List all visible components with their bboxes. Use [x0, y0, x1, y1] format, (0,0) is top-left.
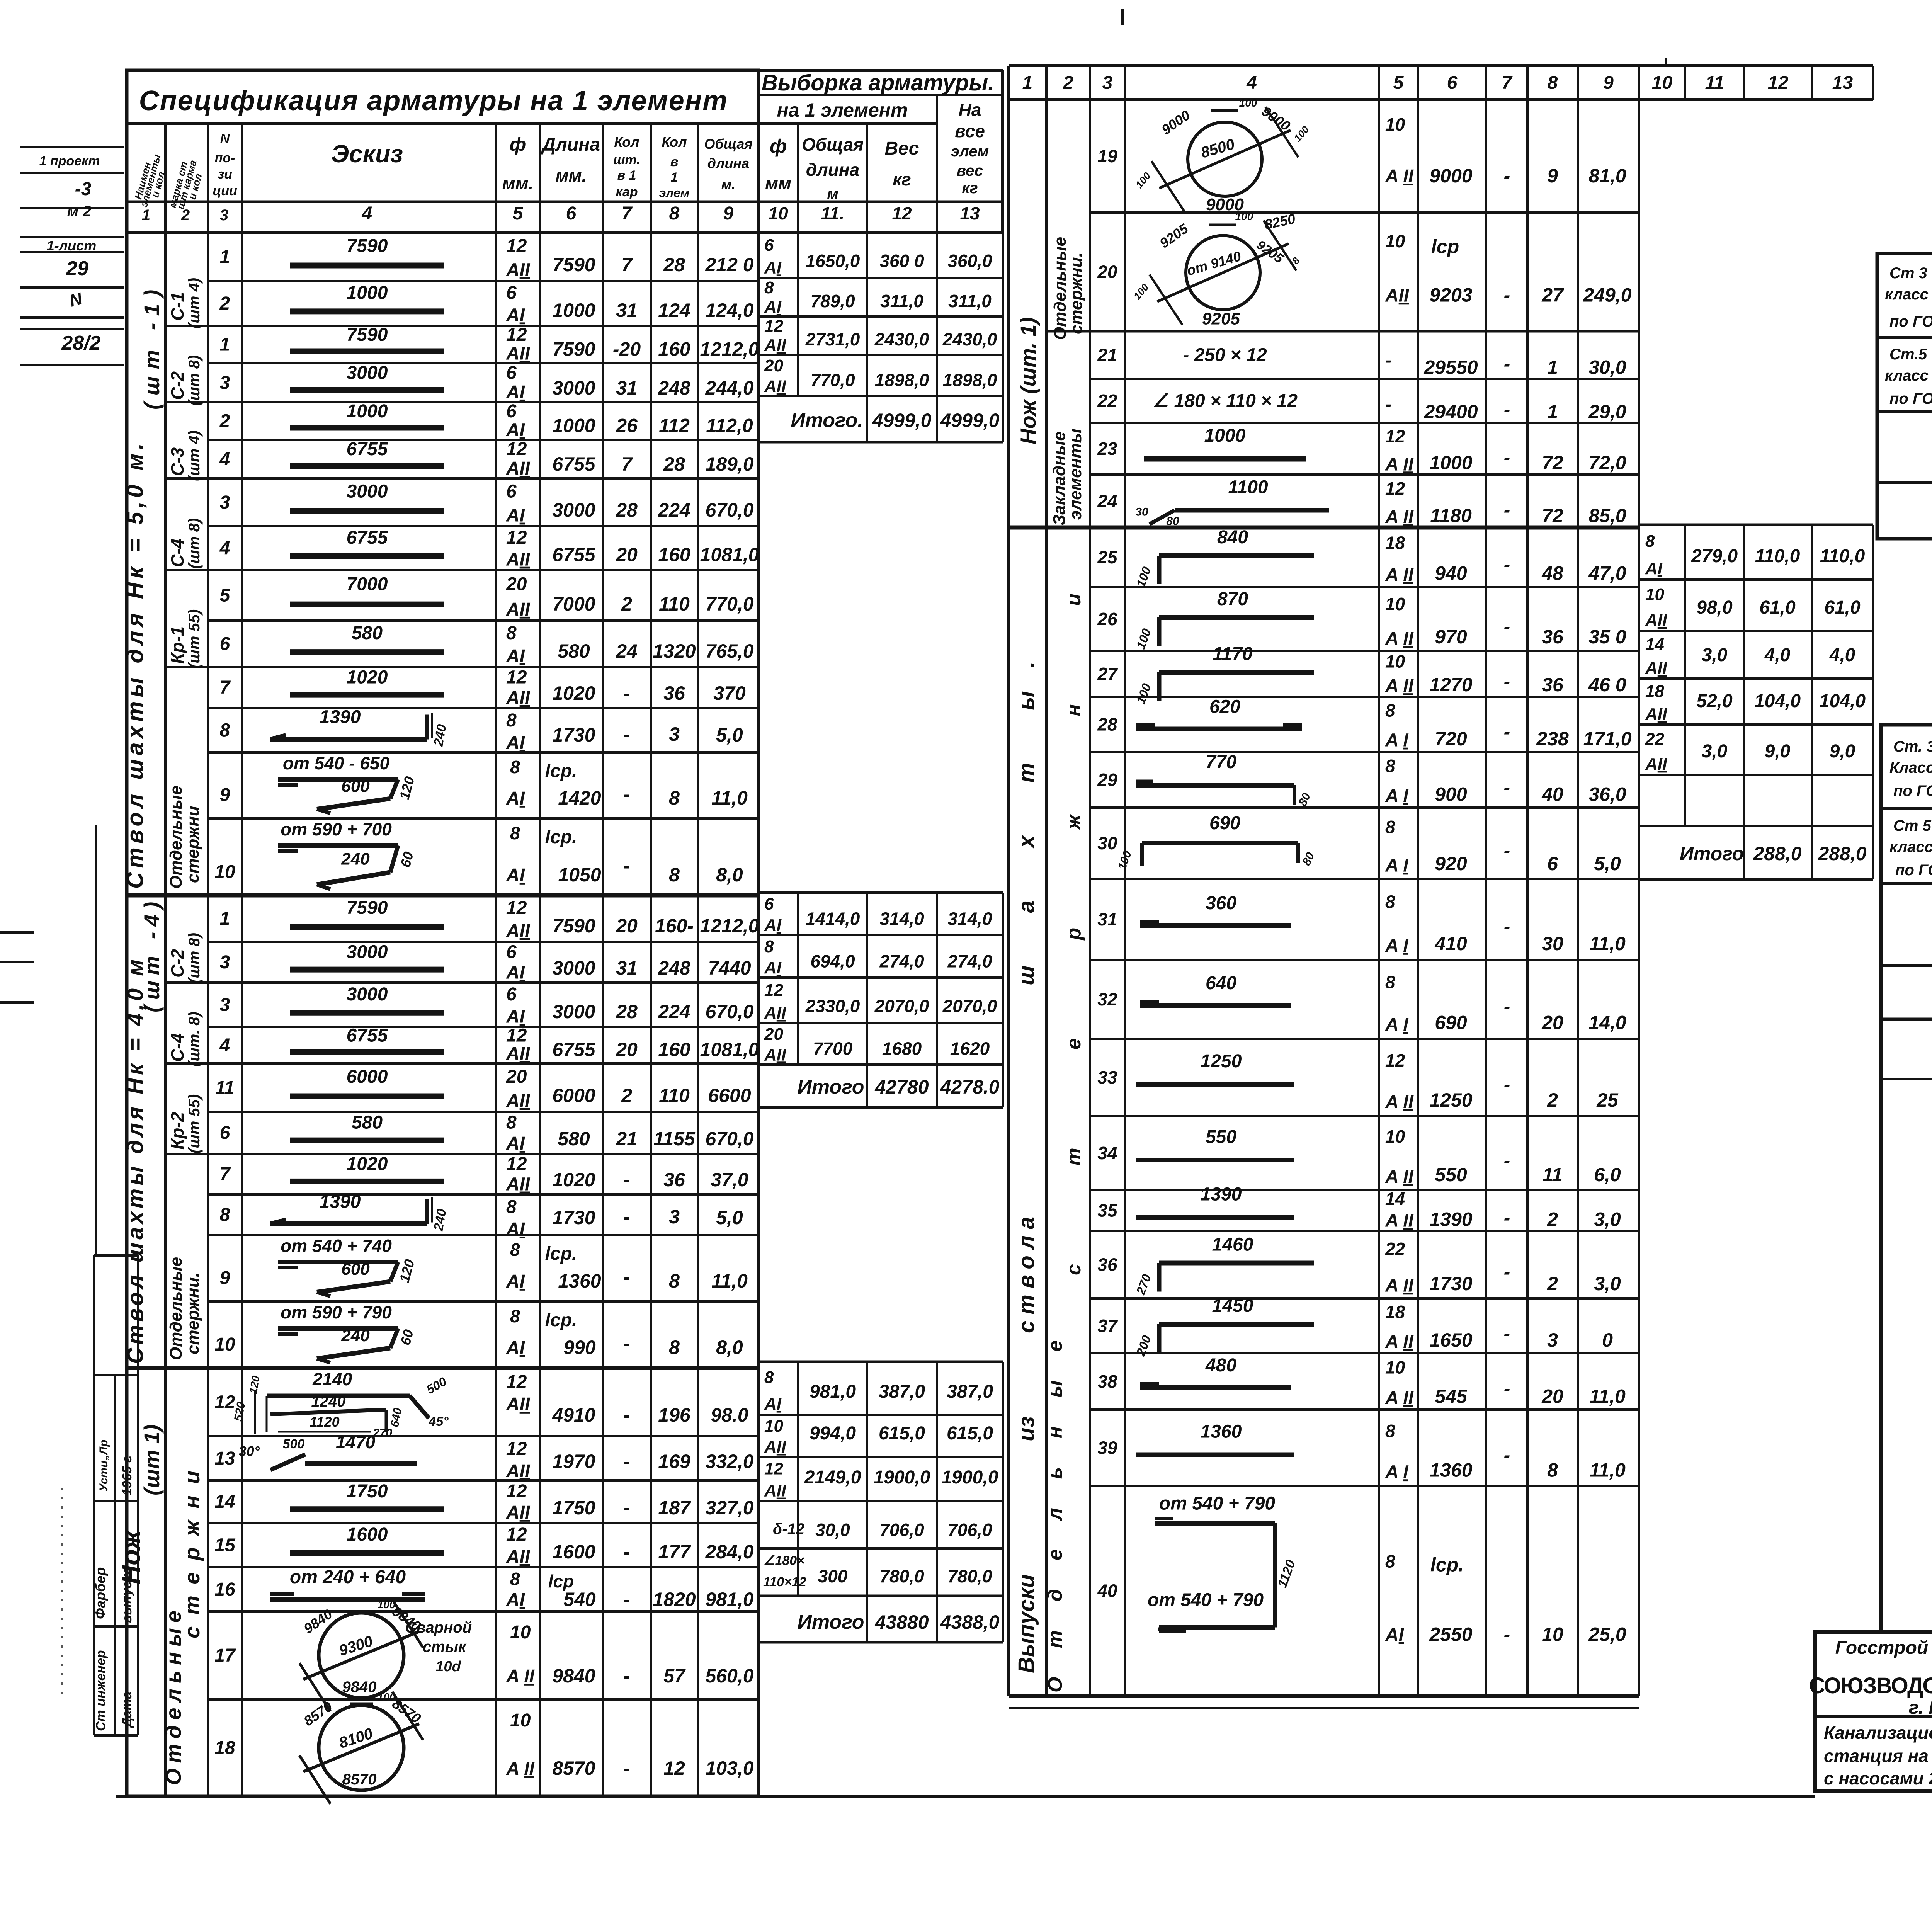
svg-text:8: 8	[764, 1368, 774, 1387]
svg-text:1900,0: 1900,0	[942, 1467, 998, 1488]
svg-text:1420: 1420	[558, 787, 601, 809]
svg-text:2: 2	[1547, 1089, 1558, 1111]
svg-text:9203: 9203	[1429, 284, 1472, 306]
svg-text:12: 12	[506, 1154, 527, 1174]
svg-text:1970: 1970	[552, 1451, 595, 1472]
svg-text:-: -	[1504, 1207, 1510, 1229]
svg-text:100: 100	[378, 1599, 396, 1611]
svg-text:4: 4	[362, 203, 372, 224]
svg-text:37,0: 37,0	[711, 1169, 748, 1191]
svg-text:Итого: Итого	[1680, 843, 1744, 864]
svg-text:1460: 1460	[1212, 1235, 1253, 1255]
svg-text:45°: 45°	[428, 1414, 449, 1429]
svg-text:560,0: 560,0	[705, 1665, 753, 1687]
svg-text:1390: 1390	[320, 707, 361, 728]
svg-text:AI: AI	[506, 1590, 526, 1610]
svg-text:24: 24	[1097, 491, 1117, 511]
svg-text:8: 8	[510, 1306, 520, 1326]
svg-text:элементы: элементы	[1066, 429, 1085, 520]
svg-text:12: 12	[214, 1392, 235, 1413]
svg-text:72: 72	[1542, 452, 1563, 474]
svg-text:6: 6	[506, 362, 517, 383]
svg-text:-: -	[1504, 1624, 1510, 1645]
svg-text:Итого: Итого	[798, 1611, 864, 1633]
svg-text:11,0: 11,0	[711, 787, 748, 809]
svg-text:Общая: Общая	[704, 136, 752, 152]
svg-text:8: 8	[1385, 1551, 1395, 1572]
svg-text:1680: 1680	[882, 1038, 922, 1058]
svg-text:С-1: С-1	[167, 292, 187, 321]
svg-text:0: 0	[1602, 1329, 1613, 1351]
svg-text:13: 13	[1832, 73, 1853, 93]
svg-text:AII: AII	[506, 1091, 531, 1111]
svg-text:7590: 7590	[347, 325, 388, 345]
svg-text:-: -	[1504, 1378, 1510, 1400]
svg-text:Кр-1: Кр-1	[167, 626, 187, 664]
svg-text:12: 12	[764, 1459, 783, 1478]
svg-text:-: -	[1504, 616, 1510, 637]
svg-text:AI: AI	[506, 646, 526, 667]
svg-text:1414,0: 1414,0	[806, 909, 860, 929]
svg-text:600: 600	[341, 777, 370, 796]
svg-text:1250: 1250	[1201, 1051, 1242, 1072]
svg-text:7: 7	[1502, 73, 1513, 93]
svg-text:Эскиз: Эскиз	[331, 140, 403, 168]
svg-text:2: 2	[1547, 1273, 1558, 1294]
svg-text:1170: 1170	[1213, 644, 1253, 664]
svg-text:2731,0: 2731,0	[805, 329, 860, 349]
svg-text:1470: 1470	[336, 1432, 376, 1452]
svg-text:δ-12: δ-12	[773, 1521, 804, 1538]
svg-text:AII: AII	[764, 377, 786, 396]
svg-text:9,0: 9,0	[1830, 741, 1855, 762]
svg-text:13: 13	[214, 1448, 235, 1469]
svg-text:AI: AI	[764, 258, 782, 277]
svg-text:(шт 8): (шт 8)	[186, 355, 203, 406]
svg-text:5,0: 5,0	[716, 1207, 743, 1228]
svg-text:3000: 3000	[347, 362, 388, 383]
svg-text:311,0: 311,0	[948, 291, 992, 311]
svg-text:1081,0: 1081,0	[700, 544, 759, 565]
svg-text:1081,0: 1081,0	[700, 1039, 759, 1060]
svg-text:12: 12	[663, 1757, 685, 1779]
svg-text:9840: 9840	[552, 1665, 595, 1687]
svg-text:46 0: 46 0	[1588, 674, 1626, 696]
svg-text:224: 224	[658, 1001, 690, 1022]
svg-text:550: 550	[1206, 1127, 1236, 1147]
svg-text:8: 8	[1547, 1459, 1558, 1481]
svg-text:Ст. 3 ГОСТ 380-60: Ст. 3 ГОСТ 380-60	[1893, 738, 1932, 755]
svg-text:20: 20	[506, 1067, 527, 1087]
svg-text:AI: AI	[1645, 559, 1663, 578]
svg-text:2: 2	[219, 293, 230, 314]
svg-text:8: 8	[669, 203, 680, 224]
svg-text:9840: 9840	[342, 1679, 377, 1696]
svg-text:С-2: С-2	[167, 371, 187, 400]
svg-text:lср.: lср.	[545, 761, 577, 781]
svg-text:6: 6	[764, 236, 774, 255]
svg-text:AII: AII	[1645, 659, 1667, 678]
svg-text:12: 12	[506, 1026, 527, 1046]
svg-text:от 540 + 790: от 540 + 790	[1159, 1493, 1276, 1514]
svg-text:3: 3	[220, 492, 230, 513]
svg-text:Общая: Общая	[802, 134, 864, 155]
svg-text:120: 120	[396, 1257, 417, 1284]
svg-text:1000: 1000	[1204, 425, 1246, 446]
svg-text:169: 169	[658, 1451, 690, 1472]
svg-text:-: -	[1504, 165, 1510, 187]
svg-text:240: 240	[431, 1208, 449, 1232]
svg-text:12: 12	[1385, 426, 1405, 446]
svg-text:10: 10	[1652, 73, 1673, 93]
svg-text:545: 545	[1435, 1385, 1468, 1407]
svg-text:3: 3	[220, 952, 230, 973]
svg-text:100: 100	[1116, 849, 1134, 872]
svg-text:3,0: 3,0	[1594, 1208, 1621, 1230]
svg-text:690: 690	[1209, 813, 1240, 833]
svg-text:вес: вес	[957, 162, 983, 179]
svg-text:36,0: 36,0	[1588, 784, 1626, 805]
svg-text:A I: A I	[1385, 1015, 1409, 1035]
svg-text:72: 72	[1542, 505, 1563, 526]
svg-text:8: 8	[220, 1205, 230, 1225]
svg-text:1050: 1050	[558, 864, 601, 886]
svg-text:10: 10	[1385, 1357, 1405, 1378]
svg-text:AII: AII	[506, 458, 531, 479]
svg-text:5: 5	[220, 585, 231, 606]
svg-text:AI: AI	[506, 1271, 526, 1292]
svg-text:AII: AII	[764, 1437, 786, 1456]
svg-text:6755: 6755	[552, 544, 595, 565]
svg-text:AI: AI	[506, 962, 526, 983]
svg-text:1900,0: 1900,0	[874, 1467, 930, 1488]
svg-text:580: 580	[558, 640, 590, 662]
svg-text:AII: AII	[1385, 286, 1410, 306]
svg-text:1390: 1390	[320, 1192, 361, 1212]
svg-text:900: 900	[1435, 784, 1467, 805]
svg-text:21: 21	[616, 1128, 638, 1150]
svg-text:8,0: 8,0	[716, 864, 743, 886]
svg-text:2330,0: 2330,0	[805, 996, 860, 1016]
svg-text:-: -	[624, 723, 630, 745]
svg-text:20: 20	[616, 1039, 638, 1060]
svg-text:12: 12	[1385, 1050, 1405, 1070]
svg-text:AI: AI	[506, 382, 526, 403]
svg-text:100: 100	[1134, 565, 1154, 589]
svg-text:7590: 7590	[552, 915, 595, 937]
svg-text:стержни.: стержни.	[1067, 252, 1086, 334]
svg-text:9: 9	[723, 203, 734, 224]
svg-text:500: 500	[283, 1437, 305, 1451]
svg-text:7: 7	[220, 1164, 231, 1185]
svg-text:31: 31	[616, 957, 638, 979]
svg-text:8: 8	[1645, 532, 1655, 551]
svg-text:длина: длина	[806, 160, 860, 180]
svg-text:1270: 1270	[1429, 674, 1472, 696]
svg-text:690: 690	[1435, 1012, 1467, 1034]
svg-text:30,0: 30,0	[1588, 357, 1626, 378]
svg-text:47,0: 47,0	[1588, 563, 1626, 584]
svg-text:981,0: 981,0	[705, 1589, 753, 1610]
svg-text:AI: AI	[506, 505, 526, 526]
svg-text:274,0: 274,0	[879, 951, 924, 971]
svg-text:3: 3	[669, 1206, 680, 1228]
svg-text:9: 9	[220, 1268, 230, 1288]
svg-text:∠180×: ∠180×	[763, 1553, 804, 1568]
svg-text:26: 26	[1097, 609, 1117, 629]
svg-text:-: -	[1504, 776, 1510, 798]
svg-text:lср.: lср.	[545, 1243, 577, 1264]
svg-text:9205: 9205	[1156, 220, 1191, 251]
svg-text:314,0: 314,0	[879, 909, 924, 929]
svg-text:1600: 1600	[347, 1524, 388, 1545]
svg-text:A II: A II	[506, 1666, 535, 1687]
svg-text:1450: 1450	[1212, 1296, 1253, 1316]
svg-text:7000: 7000	[552, 593, 595, 615]
svg-text:кг: кг	[893, 169, 911, 189]
svg-text:112: 112	[659, 415, 690, 437]
svg-text:4999,0: 4999,0	[872, 410, 932, 431]
svg-text:Вес: Вес	[885, 138, 919, 159]
svg-text:г. Москва.: г. Москва.	[1909, 1698, 1932, 1718]
svg-text:A II: A II	[1385, 507, 1414, 527]
svg-text:8: 8	[669, 864, 680, 886]
svg-text:AI: AI	[506, 1133, 526, 1154]
svg-text:8570: 8570	[552, 1757, 595, 1779]
svg-text:387,0: 387,0	[879, 1381, 925, 1402]
svg-text:31: 31	[616, 299, 638, 321]
svg-text:8: 8	[510, 1240, 520, 1260]
svg-text:6: 6	[1447, 73, 1458, 93]
svg-text:AI: AI	[764, 958, 782, 977]
svg-text:(шт. 8): (шт. 8)	[186, 1012, 203, 1067]
svg-text:720: 720	[1435, 728, 1467, 750]
svg-text:13: 13	[960, 203, 980, 223]
svg-text:1: 1	[142, 207, 150, 224]
svg-text:A II: A II	[1385, 1332, 1414, 1352]
svg-text:Канализационная насосная: Канализационная насосная	[1824, 1723, 1932, 1743]
svg-text:-: -	[1504, 1444, 1510, 1466]
svg-text:34: 34	[1097, 1143, 1117, 1163]
svg-text:36: 36	[1097, 1255, 1117, 1275]
svg-text:994,0: 994,0	[810, 1423, 856, 1444]
svg-text:1390: 1390	[1201, 1184, 1242, 1205]
svg-text:A II: A II	[1385, 166, 1414, 187]
svg-text:103,0: 103,0	[705, 1757, 753, 1779]
svg-text:1750: 1750	[552, 1497, 595, 1519]
svg-text:8: 8	[764, 278, 774, 297]
svg-text:9000: 9000	[1158, 107, 1193, 138]
svg-text:м: м	[827, 185, 838, 202]
svg-text:8: 8	[764, 937, 774, 956]
svg-text:27: 27	[1097, 664, 1118, 684]
svg-text:2070,0: 2070,0	[942, 996, 997, 1016]
svg-text:187: 187	[658, 1497, 691, 1519]
svg-text:класс А-II Сортамент: класс А-II Сортамент	[1885, 367, 1932, 384]
svg-text:1000: 1000	[552, 415, 595, 437]
svg-text:11: 11	[1543, 1164, 1563, 1186]
svg-text:Отдельные: Отдельные	[167, 786, 185, 889]
svg-text:42780: 42780	[874, 1076, 929, 1098]
svg-text:A II: A II	[1385, 1092, 1414, 1112]
svg-text:1: 1	[220, 247, 230, 267]
svg-text:AII: AII	[764, 1482, 786, 1500]
svg-text:элем: элем	[951, 143, 989, 160]
svg-text:4,0: 4,0	[1764, 645, 1791, 665]
svg-text:A II: A II	[1385, 676, 1414, 696]
svg-text:765,0: 765,0	[705, 640, 753, 662]
svg-text:6: 6	[220, 634, 230, 654]
svg-text:-: -	[1504, 996, 1510, 1017]
svg-text:-: -	[1504, 721, 1510, 743]
svg-text:189,0: 189,0	[705, 453, 753, 475]
svg-text:-: -	[624, 855, 630, 877]
svg-text:14: 14	[1385, 1189, 1405, 1209]
svg-text:110: 110	[659, 593, 690, 615]
svg-text:10: 10	[1385, 231, 1405, 251]
svg-text:от 9140: от 9140	[1185, 248, 1243, 279]
svg-text:20: 20	[1541, 1385, 1563, 1407]
svg-text:AII: AII	[1645, 755, 1667, 774]
svg-text:12: 12	[1385, 478, 1405, 498]
svg-text:8: 8	[1548, 73, 1558, 93]
svg-text:в: в	[670, 155, 679, 169]
svg-text:3: 3	[220, 373, 230, 393]
svg-text:620: 620	[1209, 697, 1240, 717]
svg-text:8: 8	[669, 787, 680, 809]
svg-text:3000: 3000	[347, 481, 388, 502]
svg-text:Нож (шт. 1): Нож (шт. 1)	[1016, 317, 1040, 444]
svg-text:по ГОСТ 5781-61: по ГОСТ 5781-61	[1889, 313, 1932, 330]
svg-text:1180: 1180	[1430, 505, 1472, 526]
svg-text:770,0: 770,0	[705, 593, 753, 615]
svg-text:AI: AI	[764, 1395, 782, 1414]
svg-text:28: 28	[663, 254, 685, 276]
svg-text:AI: AI	[506, 865, 526, 886]
svg-text:81,0: 81,0	[1588, 165, 1626, 187]
svg-text:18: 18	[1385, 1302, 1405, 1322]
svg-text:100: 100	[1239, 97, 1257, 109]
svg-text:8: 8	[1385, 756, 1395, 776]
svg-text:7: 7	[622, 203, 633, 224]
svg-text:мм.: мм.	[556, 165, 587, 185]
svg-text:A II: A II	[1385, 454, 1414, 475]
svg-text:1730: 1730	[552, 1207, 595, 1228]
svg-text:1: 1	[1547, 401, 1558, 423]
svg-text:410: 410	[1434, 933, 1467, 954]
svg-text:6: 6	[506, 282, 517, 303]
svg-text:ции: ции	[213, 184, 237, 198]
svg-text:12: 12	[506, 667, 527, 687]
svg-text:16: 16	[214, 1579, 235, 1600]
svg-text:A II: A II	[1385, 1167, 1414, 1187]
svg-text:4: 4	[1246, 73, 1257, 93]
svg-text:238: 238	[1536, 728, 1569, 750]
svg-text:10: 10	[1385, 114, 1405, 134]
svg-text:37: 37	[1097, 1316, 1118, 1336]
svg-text:6: 6	[764, 895, 774, 913]
svg-text:стык: стык	[423, 1638, 467, 1655]
svg-text:стержни: стержни	[184, 806, 202, 883]
svg-text:35 0: 35 0	[1588, 626, 1626, 648]
svg-text:1155: 1155	[653, 1128, 696, 1150]
svg-text:550: 550	[1435, 1164, 1467, 1186]
svg-text:(шт 4): (шт 4)	[186, 278, 203, 328]
svg-text:224: 224	[658, 499, 690, 521]
svg-text:5: 5	[1393, 73, 1404, 93]
svg-text:580: 580	[352, 1112, 383, 1133]
svg-text:61,0: 61,0	[1824, 597, 1861, 618]
svg-text:12: 12	[764, 981, 783, 1000]
svg-text:AII: AII	[764, 1004, 786, 1022]
svg-text:360: 360	[1206, 893, 1236, 913]
svg-text:AI: AI	[1385, 1625, 1405, 1645]
svg-text:20: 20	[1541, 1012, 1563, 1034]
svg-text:от 590 + 790: от 590 + 790	[281, 1302, 392, 1322]
svg-text:Итого.: Итого.	[791, 409, 863, 432]
svg-text:Усти„Лр: Усти„Лр	[97, 1440, 110, 1492]
svg-text:327,0: 327,0	[705, 1497, 753, 1519]
svg-text:1020: 1020	[552, 682, 595, 704]
svg-text:28: 28	[1097, 714, 1117, 735]
svg-text:38: 38	[1097, 1371, 1117, 1391]
svg-text:20: 20	[764, 356, 783, 375]
svg-text:6: 6	[506, 984, 517, 1005]
svg-text:80: 80	[1300, 850, 1317, 867]
svg-text:9: 9	[220, 785, 230, 805]
svg-text:1820: 1820	[653, 1589, 696, 1610]
svg-text:Сварной: Сварной	[405, 1619, 472, 1636]
svg-text:зи: зи	[218, 167, 232, 182]
svg-text:8: 8	[506, 710, 517, 731]
svg-text:Кол: Кол	[614, 134, 639, 150]
svg-text:30: 30	[1542, 933, 1563, 954]
svg-text:36: 36	[663, 1169, 685, 1191]
svg-text:lср: lср	[1431, 236, 1459, 257]
svg-text:120: 120	[396, 775, 417, 801]
svg-text:10: 10	[768, 203, 788, 223]
svg-text:-: -	[624, 1665, 630, 1687]
svg-text:11: 11	[215, 1078, 235, 1098]
svg-text:2: 2	[1063, 73, 1073, 93]
svg-text:2: 2	[621, 1085, 632, 1106]
svg-text:6: 6	[506, 481, 517, 502]
svg-text:-: -	[1504, 916, 1510, 937]
svg-text:24: 24	[616, 640, 638, 662]
svg-text:класс АII Сортамент: класс АII Сортамент	[1889, 839, 1932, 856]
svg-text:1120: 1120	[310, 1414, 339, 1430]
svg-text:Ст 3 ГОСТ 380 - 60: Ст 3 ГОСТ 380 - 60	[1889, 265, 1932, 282]
svg-text:кг: кг	[962, 180, 978, 197]
svg-text:-: -	[624, 1404, 630, 1426]
svg-text:AI: AI	[506, 305, 526, 325]
svg-text:36: 36	[663, 682, 685, 704]
svg-text:30,0: 30,0	[815, 1520, 850, 1540]
svg-text:25: 25	[1097, 547, 1118, 567]
svg-text:12: 12	[506, 1372, 527, 1392]
svg-text:из: из	[1014, 1416, 1039, 1441]
svg-text:11: 11	[1705, 73, 1725, 93]
svg-text:387,0: 387,0	[947, 1381, 993, 1402]
svg-text:240: 240	[341, 849, 370, 868]
svg-text:AII: AII	[506, 687, 531, 708]
svg-text:30: 30	[1135, 506, 1148, 519]
svg-text:98,0: 98,0	[1696, 597, 1733, 618]
svg-text:27: 27	[1541, 284, 1564, 306]
svg-text:100: 100	[1134, 682, 1154, 706]
svg-text:11,0: 11,0	[1589, 1385, 1626, 1407]
svg-text:29: 29	[1097, 770, 1117, 790]
